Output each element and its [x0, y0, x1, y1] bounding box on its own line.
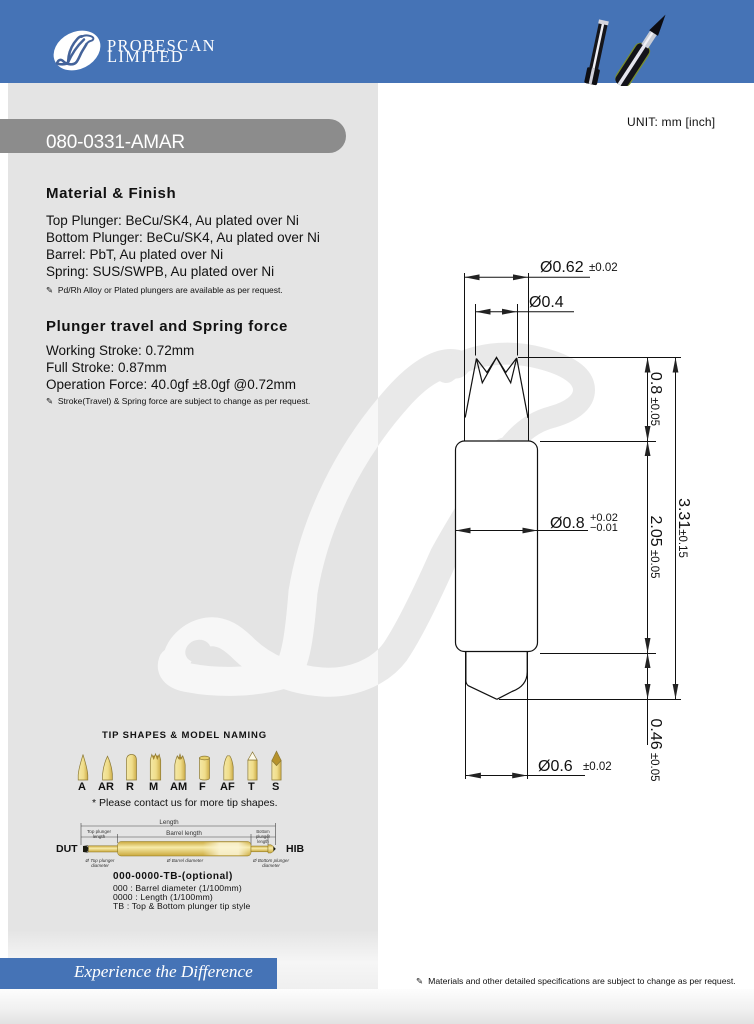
svg-text:Length: Length: [159, 819, 179, 826]
svg-text:Barrel length: Barrel length: [166, 830, 202, 837]
svg-text:diameter: diameter: [91, 863, 109, 868]
svg-text:−0.01: −0.01: [590, 522, 618, 534]
svg-text:3.31±0.15: 3.31±0.15: [675, 498, 692, 558]
svg-text:Ø Barrel diameter: Ø Barrel diameter: [166, 858, 204, 863]
svg-text:±0.02: ±0.02: [589, 262, 618, 274]
svg-text:diameter: diameter: [262, 863, 280, 868]
svg-text:Ø0.8: Ø0.8: [550, 515, 585, 532]
svg-text:length: length: [257, 839, 269, 844]
svg-text:2.05 ±0.05: 2.05 ±0.05: [647, 515, 664, 578]
svg-text:Ø0.4: Ø0.4: [529, 294, 564, 311]
svg-text:0.46 ±0.05: 0.46 ±0.05: [647, 718, 664, 781]
svg-text:0.8 ±0.05: 0.8 ±0.05: [647, 372, 664, 426]
svg-text:±0.02: ±0.02: [583, 761, 612, 773]
svg-text:Ø0.62: Ø0.62: [540, 259, 584, 276]
svg-text:Ø0.6: Ø0.6: [538, 758, 573, 775]
svg-text:DUT: DUT: [56, 843, 78, 855]
svg-text:length: length: [93, 834, 106, 839]
svg-text:HIB: HIB: [286, 843, 305, 855]
